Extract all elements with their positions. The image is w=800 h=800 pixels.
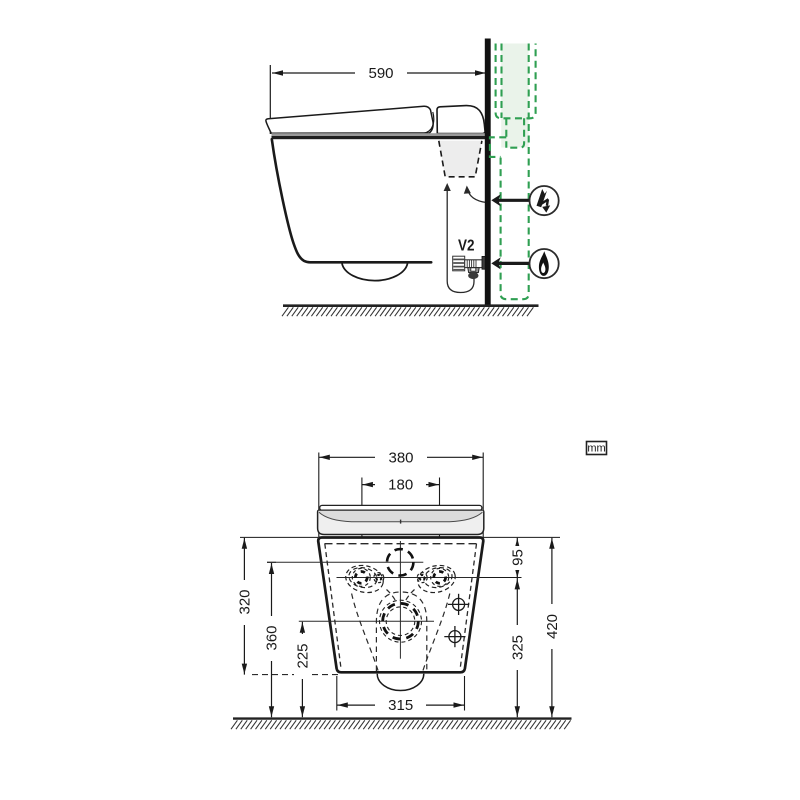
svg-text:V2: V2 [458,237,475,254]
svg-text:590: 590 [368,65,393,82]
svg-text:225: 225 [295,643,312,668]
svg-text:180: 180 [388,477,413,494]
svg-text:315: 315 [388,697,413,714]
svg-text:mm: mm [587,443,605,455]
svg-text:420: 420 [544,614,561,639]
svg-text:360: 360 [264,625,281,650]
svg-text:320: 320 [237,589,254,614]
svg-text:380: 380 [388,449,413,466]
svg-text:95: 95 [510,549,527,566]
svg-text:325: 325 [510,635,527,660]
